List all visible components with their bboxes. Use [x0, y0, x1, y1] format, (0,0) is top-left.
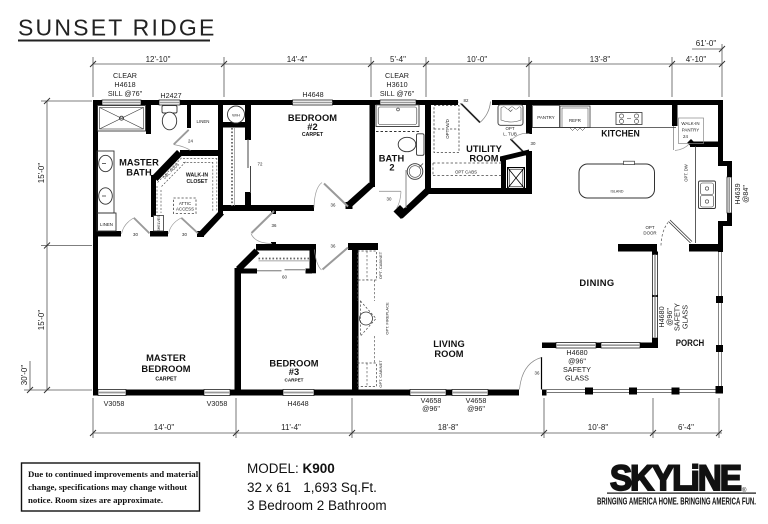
svg-text:DOOR: DOOR [643, 231, 656, 236]
svg-text:H4648: H4648 [287, 399, 308, 408]
svg-text:H3610: H3610 [386, 80, 407, 89]
svg-text:MODEL: K900: MODEL: K900 [247, 461, 335, 476]
svg-text:KITCHEN: KITCHEN [601, 129, 640, 140]
svg-text:CARPET: CARPET [285, 378, 304, 383]
svg-text:OPT. CABINET: OPT. CABINET [378, 251, 383, 279]
svg-text:H2427: H2427 [160, 91, 181, 100]
svg-text:36: 36 [331, 203, 336, 208]
svg-text:30: 30 [133, 232, 138, 237]
svg-text:CLEAR: CLEAR [385, 71, 409, 80]
svg-text:ROOM: ROOM [434, 349, 463, 359]
svg-text:12'-10": 12'-10" [146, 55, 171, 64]
svg-text:ISLAND: ISLAND [611, 190, 624, 194]
svg-text:OPT. CABINET: OPT. CABINET [378, 360, 383, 388]
svg-text:10'-8": 10'-8" [588, 423, 609, 432]
svg-text:OPT CABS: OPT CABS [455, 170, 477, 175]
svg-text:CARPET: CARPET [155, 377, 177, 383]
svg-text:H4618: H4618 [114, 80, 135, 89]
svg-text:change, specifications may cha: change, specifications may change withou… [28, 482, 187, 492]
svg-text:10'-0": 10'-0" [467, 55, 488, 64]
svg-text:MASTER: MASTER [146, 353, 186, 363]
svg-text:notice. Room sizes are approxi: notice. Room sizes are approximate. [28, 495, 163, 505]
svg-text:24: 24 [188, 139, 193, 144]
svg-text:OPT. W/D: OPT. W/D [445, 119, 450, 139]
svg-text:REFR: REFR [569, 118, 581, 123]
svg-text:30: 30 [531, 141, 536, 146]
svg-text:24: 24 [683, 134, 688, 139]
svg-text:5'-4": 5'-4" [390, 55, 406, 64]
svg-text:OPT. FIREPLACE: OPT. FIREPLACE [385, 302, 390, 335]
svg-text:#3: #3 [289, 367, 300, 377]
svg-text:15'-0": 15'-0" [37, 163, 46, 184]
svg-text:11'-4": 11'-4" [281, 423, 301, 432]
svg-text:ACCESS: ACCESS [176, 207, 194, 212]
svg-text:3 Bedroom 2 Bathroom: 3 Bedroom 2 Bathroom [247, 498, 387, 513]
svg-text:PORCH: PORCH [676, 338, 705, 348]
svg-text:18'-8": 18'-8" [438, 423, 459, 432]
svg-text:WALK-IN: WALK-IN [681, 121, 699, 126]
svg-text:ATTIC: ATTIC [179, 201, 191, 206]
svg-text:30'-0": 30'-0" [20, 365, 29, 386]
svg-text:DINING: DINING [579, 277, 614, 288]
svg-text:2: 2 [389, 163, 394, 173]
svg-text:PANTRY: PANTRY [537, 115, 554, 120]
svg-text:CARPET: CARPET [302, 132, 324, 138]
svg-text:SILL @76": SILL @76" [380, 89, 415, 98]
svg-text:GLASS: GLASS [681, 305, 690, 329]
svg-text:4'-10": 4'-10" [686, 55, 707, 64]
svg-text:SKYLiNE: SKYLiNE [610, 459, 741, 498]
svg-text:SHELVES: SHELVES [157, 215, 161, 232]
svg-text:OPT: OPT [645, 225, 654, 230]
svg-text:H4648: H4648 [302, 90, 323, 99]
svg-text:14'-4": 14'-4" [287, 55, 308, 64]
svg-text:W/H: W/H [232, 113, 240, 118]
svg-text:L. TUB: L. TUB [503, 132, 517, 137]
svg-text:SILL @76": SILL @76" [108, 89, 143, 98]
svg-text:ROOM: ROOM [469, 154, 498, 164]
svg-text:BATH: BATH [126, 168, 152, 178]
svg-text:CLOSET: CLOSET [186, 179, 208, 185]
svg-text:BRINGING AMERICA HOME. BRINGIN: BRINGING AMERICA HOME. BRINGING AMERICA … [597, 496, 756, 508]
svg-text:WALK-IN: WALK-IN [186, 173, 208, 179]
svg-text:PANTRY: PANTRY [682, 128, 699, 133]
svg-text:OPT. DW: OPT. DW [684, 164, 689, 181]
svg-text:72: 72 [258, 162, 263, 167]
svg-text:OPT: OPT [505, 126, 514, 131]
svg-text:@84": @84" [741, 185, 750, 203]
svg-text:UTILITY: UTILITY [466, 144, 503, 154]
svg-text:36: 36 [331, 244, 336, 249]
svg-text:15'-0": 15'-0" [37, 310, 46, 331]
svg-text:82: 82 [464, 98, 469, 103]
svg-text:61'-0": 61'-0" [696, 39, 717, 48]
svg-text:36: 36 [272, 223, 277, 228]
svg-text:LIVING: LIVING [433, 339, 465, 349]
svg-text:MASTER: MASTER [119, 158, 159, 168]
svg-text:GLASS: GLASS [565, 374, 589, 383]
svg-text:BEDROOM: BEDROOM [141, 364, 190, 374]
svg-text:V3058: V3058 [207, 399, 228, 408]
svg-text:6'-4": 6'-4" [678, 423, 694, 432]
svg-text:32 x 611,693 Sq.Ft.: 32 x 611,693 Sq.Ft. [247, 480, 377, 495]
svg-text:36: 36 [535, 371, 540, 376]
svg-text:60: 60 [282, 275, 287, 280]
svg-text:30: 30 [387, 197, 392, 202]
svg-text:#2: #2 [307, 122, 318, 132]
svg-text:@96": @96" [422, 404, 440, 413]
svg-text:30: 30 [182, 232, 187, 237]
svg-text:Due to continued improvements: Due to continued improvements and materi… [28, 469, 199, 479]
svg-text:V3058: V3058 [104, 399, 125, 408]
svg-text:LINEN: LINEN [197, 119, 210, 124]
svg-text:13'-8": 13'-8" [590, 55, 611, 64]
svg-text:SUNSET RIDGE: SUNSET RIDGE [18, 15, 217, 41]
svg-text:LINEN: LINEN [100, 222, 113, 227]
svg-text:14'-0": 14'-0" [154, 423, 175, 432]
svg-text:@96": @96" [467, 404, 485, 413]
svg-text:CLEAR: CLEAR [113, 71, 137, 80]
